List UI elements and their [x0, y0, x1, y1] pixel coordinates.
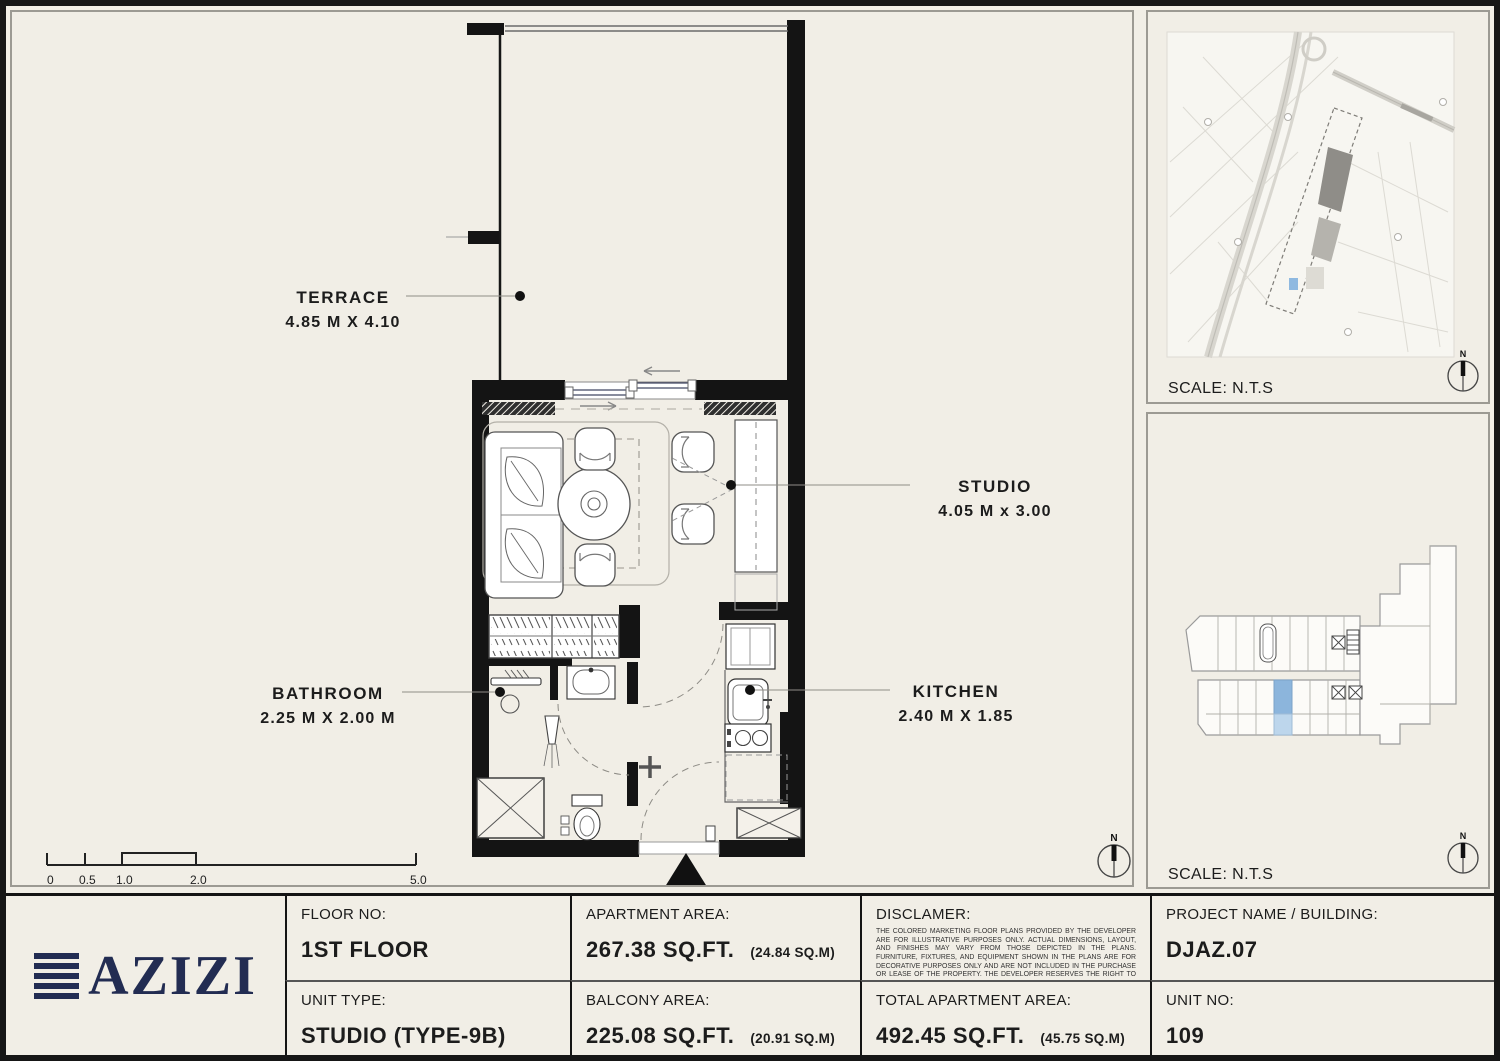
- shaft-boxes: [477, 778, 801, 838]
- entrance-threshold: [639, 842, 719, 854]
- north-compass: N: [1092, 830, 1136, 882]
- vanity-sink: [567, 666, 615, 699]
- azizi-logo: AZIZI: [34, 948, 257, 1004]
- disclaimer-text: THE COLORED MARKETING FLOOR PLANS PROVID…: [876, 928, 1136, 980]
- svg-text:N: N: [1460, 831, 1467, 841]
- location-map-panel: SCALE: N.T.S N: [1146, 10, 1490, 404]
- chair: [672, 432, 714, 472]
- floor-plan-drawing: [12, 12, 1132, 885]
- terrace-area: [446, 20, 805, 380]
- round-table: [558, 468, 630, 540]
- key-plan-panel: SCALE: N.T.S N: [1146, 412, 1490, 889]
- svg-text:N: N: [1110, 833, 1117, 844]
- scale-tick: 1.0: [116, 873, 133, 887]
- bathroom-label: BATHROOM 2.25 M X 2.00 M: [243, 681, 413, 732]
- toilet: [561, 795, 602, 840]
- studio-furniture: [483, 420, 777, 610]
- curtain-hatch-right: [704, 402, 776, 415]
- key-plan: [1148, 414, 1488, 887]
- total-area-cell: TOTAL APARTMENT AREA: 492.45 SQ.FT. (45.…: [860, 980, 1150, 1055]
- map-scale-note: SCALE: N.T.S: [1168, 380, 1273, 398]
- balcony-area-cell: BALCONY AREA: 225.08 SQ.FT. (20.91 SQ.M): [570, 980, 860, 1055]
- sliding-door: [565, 367, 696, 410]
- highlighted-unit-balcony: [1274, 714, 1292, 735]
- kitchen-fixtures: [725, 624, 788, 802]
- site-highlight: [1289, 278, 1298, 290]
- project-name-cell: PROJECT NAME / BUILDING: DJAZ.07: [1150, 896, 1494, 980]
- sofa: [485, 432, 563, 598]
- scale-tick: 2.0: [190, 873, 207, 887]
- closet: [489, 615, 619, 658]
- door-stop-symbol: [639, 756, 661, 778]
- scale-tick: 0: [47, 873, 54, 887]
- highlighted-unit: [1274, 680, 1292, 714]
- scale-bar: [47, 853, 416, 865]
- logo-bars-icon: [34, 953, 79, 999]
- north-compass: N: [1441, 345, 1485, 397]
- chair: [575, 428, 615, 470]
- studio-label: STUDIO 4.05 M x 3.00: [915, 474, 1075, 525]
- stove: [725, 724, 771, 752]
- floor-plan-panel: 0 0.5 1.0 2.0 5.0: [10, 10, 1134, 887]
- chair: [575, 544, 615, 586]
- curtain-hatch-left: [482, 402, 555, 415]
- entry-hall: [639, 624, 723, 854]
- entrance-arrow: [663, 853, 709, 885]
- scale-tick: 0.5: [79, 873, 96, 887]
- svg-text:N: N: [1460, 349, 1467, 359]
- unit-no-cell: UNIT NO: 109: [1150, 980, 1494, 1055]
- unit-type-cell: UNIT TYPE: STUDIO (TYPE-9B): [285, 980, 570, 1055]
- apartment-area-cell: APARTMENT AREA: 267.38 SQ.FT. (24.84 SQ.…: [570, 896, 860, 980]
- disclaimer-cell: DISCLAMER: THE COLORED MARKETING FLOOR P…: [860, 896, 1150, 980]
- fridge: [726, 624, 775, 669]
- brand-name: AZIZI: [88, 948, 257, 1004]
- brand-logo-cell: AZIZI: [6, 896, 285, 1055]
- north-compass: N: [1441, 827, 1485, 879]
- floorplan-sheet: 0 0.5 1.0 2.0 5.0 TERRACE 4.85 M X 4.10 …: [0, 0, 1500, 1061]
- location-map: [1148, 12, 1488, 402]
- floor-no-cell: FLOOR NO: 1ST FLOOR: [285, 896, 570, 980]
- terrace-label: TERRACE 4.85 M X 4.10: [268, 285, 418, 336]
- title-block: AZIZI FLOOR NO: 1ST FLOOR APARTMENT AREA…: [6, 893, 1494, 1055]
- key-scale-note: SCALE: N.T.S: [1168, 866, 1273, 884]
- scale-tick: 5.0: [410, 873, 427, 887]
- kitchen-label: KITCHEN 2.40 M X 1.85: [876, 679, 1036, 730]
